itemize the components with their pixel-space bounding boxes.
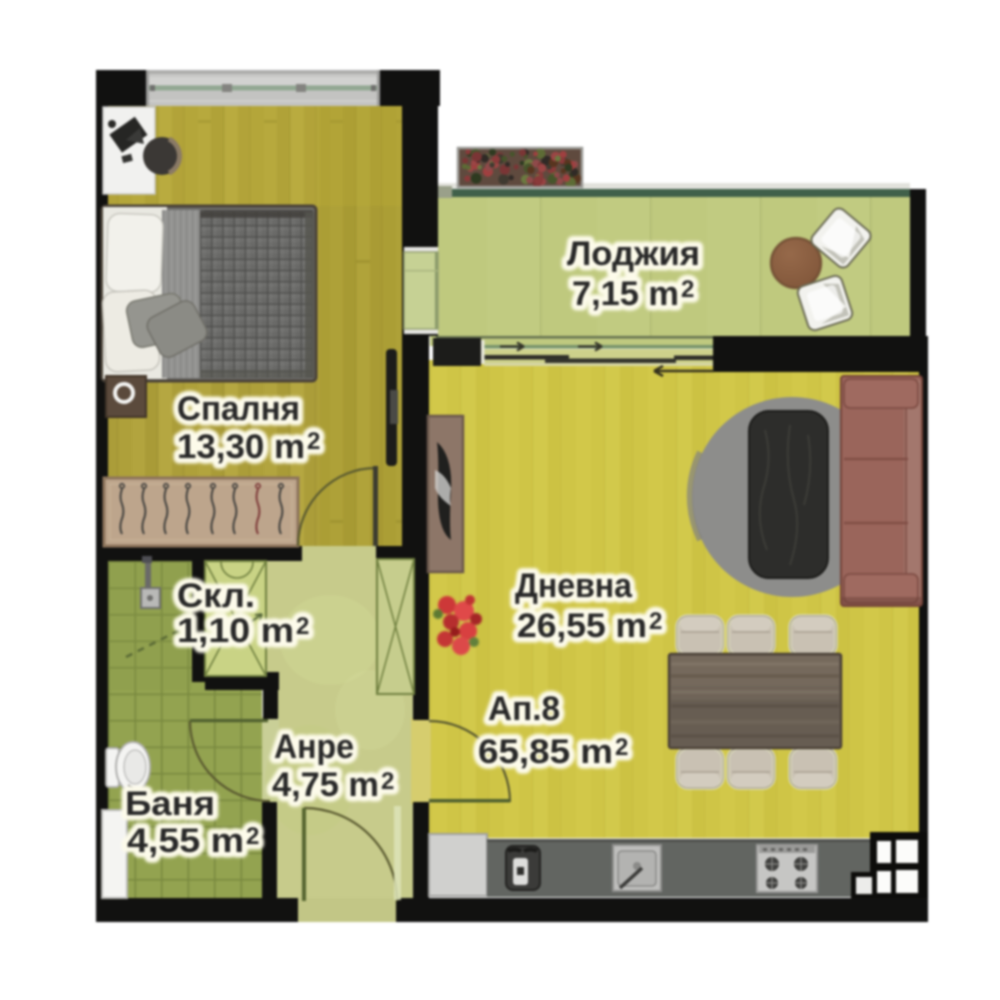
- svg-text:2: 2: [615, 734, 628, 761]
- svg-text:4,75 m: 4,75 m: [272, 766, 379, 804]
- svg-text:1,10 m: 1,10 m: [177, 612, 294, 650]
- svg-text:13,30 m: 13,30 m: [177, 428, 305, 466]
- svg-text:Лоджия: Лоджия: [567, 235, 700, 273]
- svg-text:2: 2: [381, 768, 394, 795]
- svg-text:Баня: Баня: [125, 785, 215, 823]
- svg-text:4,55 m: 4,55 m: [127, 822, 244, 860]
- svg-text:65,85 m: 65,85 m: [478, 733, 613, 771]
- svg-text:2: 2: [246, 823, 259, 850]
- svg-text:Анре: Анре: [274, 728, 354, 766]
- svg-text:Спалня: Спалня: [177, 390, 300, 428]
- svg-text:7,15 m: 7,15 m: [572, 275, 679, 313]
- svg-text:2: 2: [681, 276, 694, 303]
- svg-text:Ап.8: Ап.8: [488, 690, 560, 728]
- svg-text:Скл.: Скл.: [177, 577, 255, 615]
- svg-text:2: 2: [649, 608, 662, 635]
- svg-text:Дневна: Дневна: [515, 567, 633, 605]
- svg-text:2: 2: [307, 428, 320, 455]
- svg-text:26,55 m: 26,55 m: [517, 607, 647, 645]
- svg-text:2: 2: [296, 613, 309, 640]
